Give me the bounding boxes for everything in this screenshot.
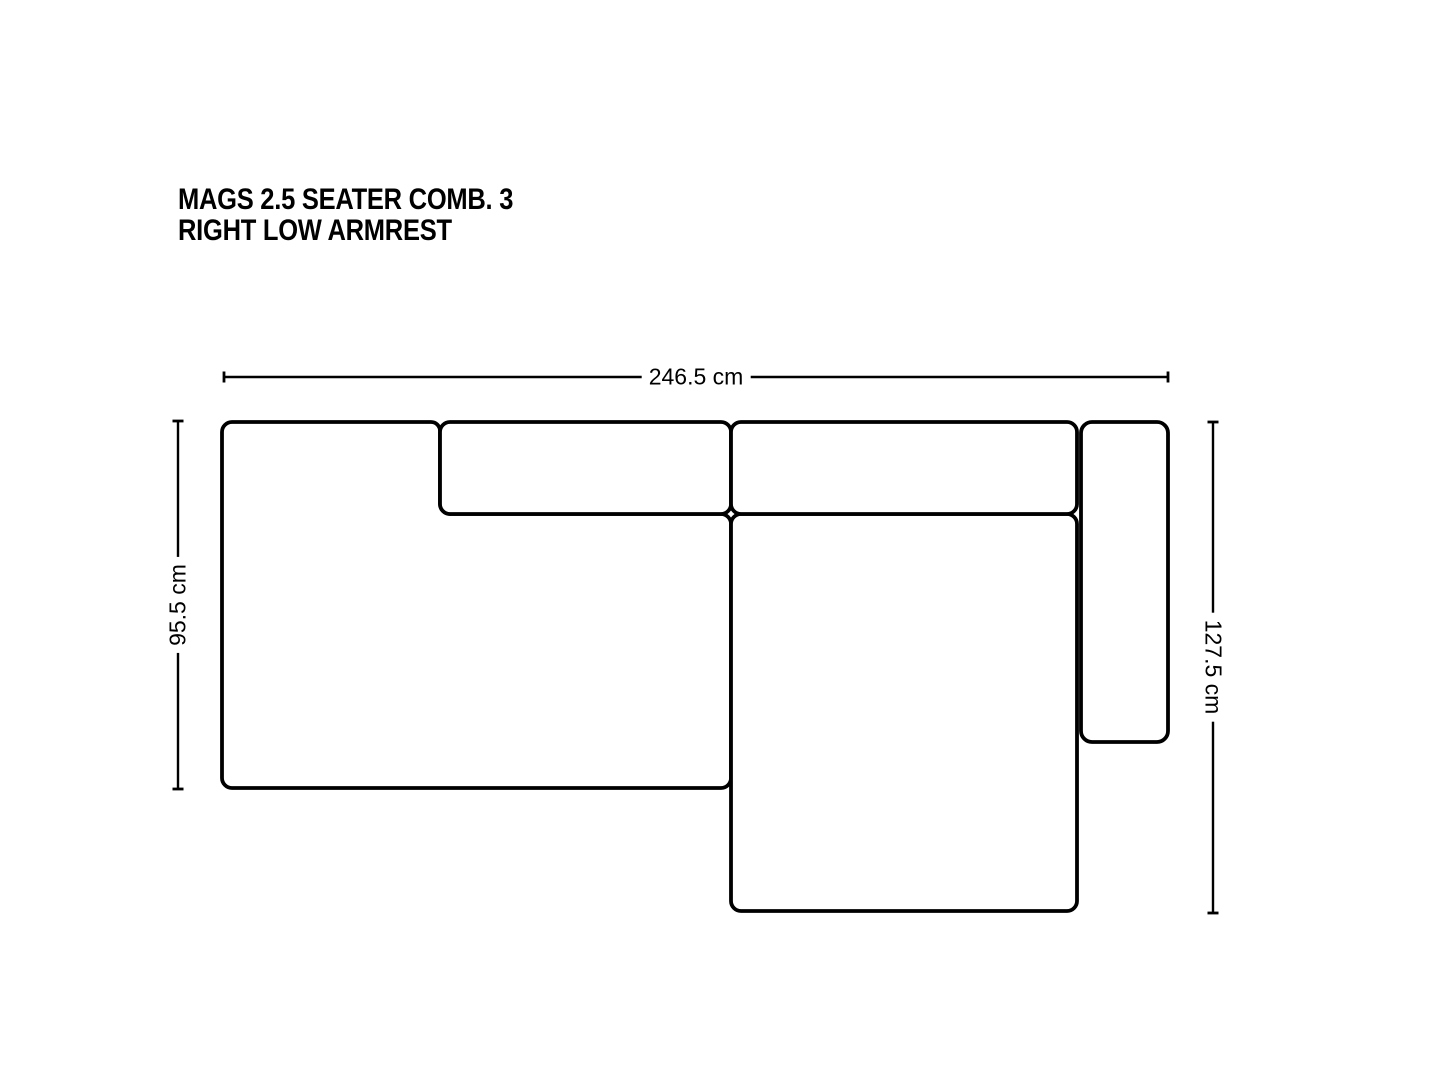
chaise-module-outline [731,514,1077,911]
seat-back-cushion-outline [440,422,731,514]
sofa-top-view-diagram [0,0,1445,1087]
right-low-armrest-outline [1081,422,1168,742]
chaise-back-cushion-outline [731,422,1077,514]
width-dimension-label: 246.5 cm [642,364,751,391]
right-depth-dimension-label: 127.5 cm [1200,613,1227,722]
left-depth-dimension-label: 95.5 cm [165,557,192,653]
sofa-modules [222,422,1168,911]
product-dimension-sheet: MAGS 2.5 SEATER COMB. 3 RIGHT LOW ARMRES… [0,0,1445,1087]
